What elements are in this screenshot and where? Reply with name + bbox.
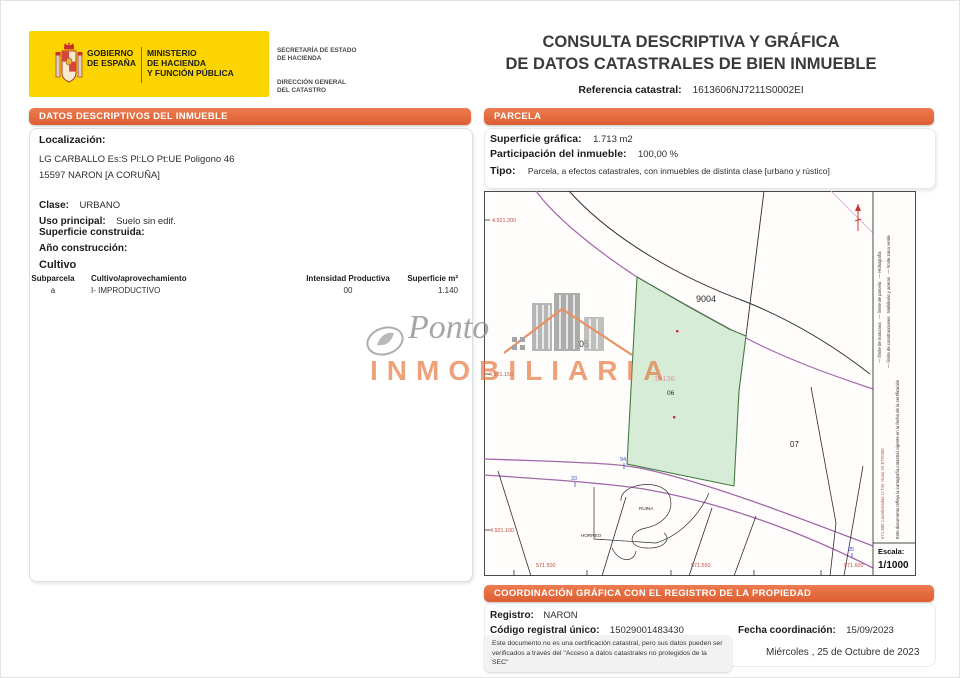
- cultivo-header-subparcela: Subparcela: [31, 274, 75, 283]
- legend-line1: — límite de manzana — límite de parcela …: [877, 251, 882, 363]
- tipo-value: Parcela, a efectos catastrales, con inmu…: [528, 166, 830, 176]
- parcel-label-16136: 16136: [654, 374, 675, 383]
- government-logo-box: GOBIERNO DE ESPAÑA MINISTERIO DE HACIEND…: [29, 31, 269, 97]
- fecha-coordinacion-label: Fecha coordinación:: [738, 625, 836, 636]
- fecha-coordinacion-value: 15/09/2023: [846, 625, 894, 636]
- cultivo-cell-cultivo: I- IMPRODUCTIVO: [91, 286, 160, 295]
- document-title-line2: DE DATOS CATASTRALES DE BIEN INMUEBLE: [481, 55, 901, 74]
- referencia-label: Referencia catastral:: [578, 84, 681, 96]
- legend-line2: — límite de construcciones Mobiliario y …: [886, 235, 891, 368]
- participacion-label: Participación del inmueble:: [490, 148, 627, 160]
- participacion-row: Participación del inmueble: 100,00 %: [490, 144, 678, 162]
- road-number-94: 94: [620, 457, 626, 463]
- cadastral-map: 4.921.200 4.921.150 4.921.100 571.500 57…: [484, 191, 916, 576]
- parcel-label-07: 07: [790, 440, 799, 449]
- document-date: Miércoles , 25 de Octubre de 2023: [766, 647, 926, 658]
- section-bar-coordinacion: COORDINACIÓN GRÁFICA CON EL REGISTRO DE …: [484, 585, 934, 602]
- section-bar-parcela: PARCELA: [484, 108, 934, 125]
- secretaria-estado-label: SECRETARÍA DE ESTADO DE HACIENDA: [277, 47, 356, 63]
- clase-label: Clase:: [39, 200, 69, 211]
- coord-x3: 571.600: [844, 563, 864, 569]
- cultivo-header-superficie: Superficie m²: [396, 274, 458, 283]
- localizacion-line1: LG CARBALLO Es:S Pl:LO Pt:UE Poligono 46: [39, 154, 234, 165]
- cultivo-cell-superficie: 1.140: [396, 286, 458, 295]
- feature-label-ruina: RUINA: [639, 506, 654, 511]
- document-page: GOBIERNO DE ESPAÑA MINISTERIO DE HACIEND…: [0, 0, 960, 678]
- spain-coat-of-arms-icon: [55, 42, 83, 86]
- road-number-85: 85: [848, 547, 854, 553]
- coord-x2: 571.550: [691, 563, 711, 569]
- coord-x1: 571.500: [536, 563, 556, 569]
- ministerio-label: MINISTERIO DE HACIENDA Y FUNCIÓN PÚBLICA: [147, 49, 234, 78]
- coord-y3: 4.921.100: [490, 528, 514, 534]
- cultivo-header-intensidad: Intensidad Productiva: [301, 274, 395, 283]
- section-bar-datos-descriptivos: DATOS DESCRIPTIVOS DEL INMUEBLE: [29, 108, 471, 125]
- referencia-value: 1613606NJ7211S0002EI: [693, 85, 804, 96]
- cultivo-cell-intensidad: 00: [301, 286, 395, 295]
- superficie-construida-label: Superficie construida:: [39, 227, 145, 238]
- uso-label: Uso principal:: [39, 216, 106, 227]
- utm-margin-note: 571.600 Coordenadas U.T.M. Huso 29 ETRS8…: [880, 448, 885, 539]
- escala-value: 1/1000: [878, 560, 909, 571]
- localizacion-line2: 15597 NARON [A CORUÑA]: [39, 170, 160, 181]
- parcel-label-9004: 9004: [696, 294, 716, 304]
- road-number-33: 33: [571, 476, 577, 482]
- map-margin-note: Este documento refleja la cartografía ca…: [895, 379, 900, 539]
- cultivo-cell-subparcela: a: [31, 286, 75, 295]
- cultivo-header-cultivo: Cultivo/aprovechamiento: [91, 274, 187, 283]
- feature-label-horreo: HORREO: [581, 533, 602, 538]
- disclaimer-note: Este documento no es una certificación c…: [484, 635, 732, 672]
- cadastral-map-container: 4.921.200 4.921.150 4.921.100 571.500 57…: [484, 191, 916, 576]
- coord-y1: 4.921.200: [492, 218, 516, 224]
- cultivo-title: Cultivo: [39, 259, 76, 271]
- referencia-catastral: Referencia catastral: 1613606NJ7211S0002…: [481, 84, 901, 96]
- direccion-general-label: DIRECCIÓN GENERAL DEL CATASTRO: [277, 79, 346, 95]
- parcel-label-05: 05: [579, 339, 589, 349]
- gobierno-de-espana-label: GOBIERNO DE ESPAÑA: [87, 49, 136, 69]
- parcel-label-06: 06: [667, 390, 675, 397]
- uso-value: Suelo sin edif.: [116, 216, 176, 227]
- tipo-row: Tipo: Parcela, a efectos catastrales, co…: [490, 161, 830, 179]
- escala-label: Escala:: [878, 547, 904, 556]
- participacion-value: 100,00 %: [638, 149, 678, 160]
- tipo-label: Tipo:: [490, 165, 515, 177]
- document-title-line1: CONSULTA DESCRIPTIVA Y GRÁFICA: [481, 33, 901, 52]
- localizacion-label: Localización:: [39, 134, 106, 146]
- ano-construccion-label: Año construcción:: [39, 243, 127, 254]
- fecha-coordinacion-row: Fecha coordinación: 15/09/2023: [738, 620, 894, 638]
- coord-y2: 4.921.150: [489, 372, 513, 378]
- clase-value: URBANO: [79, 200, 120, 211]
- logo-divider: [141, 47, 142, 83]
